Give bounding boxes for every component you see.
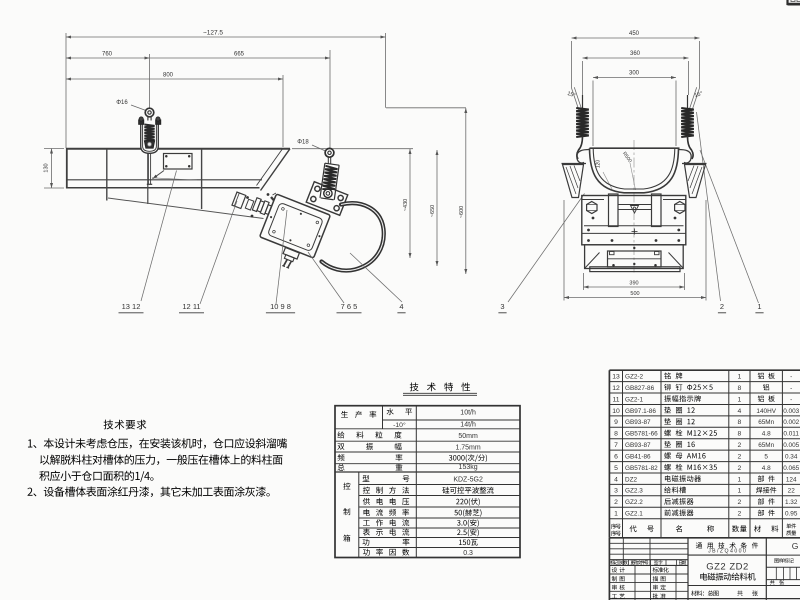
svg-text:1: 1 — [757, 302, 761, 311]
svg-text:-10°: -10° — [393, 421, 406, 429]
svg-text:2: 2 — [738, 465, 742, 472]
svg-text:8: 8 — [738, 431, 742, 438]
svg-text:13 12: 13 12 — [122, 302, 141, 311]
svg-text:4: 4 — [738, 408, 742, 415]
svg-text:2: 2 — [720, 302, 724, 311]
svg-text:~650: ~650 — [430, 205, 436, 217]
svg-text:14t/h: 14t/h — [460, 421, 476, 428]
svg-text:-: - — [790, 396, 792, 403]
svg-text:390: 390 — [629, 281, 638, 287]
svg-text:3: 3 — [500, 302, 504, 311]
svg-text:8: 8 — [738, 419, 742, 426]
svg-text:GZ2 ZD2: GZ2 ZD2 — [706, 561, 749, 572]
svg-text:GB5781-66: GB5781-66 — [625, 431, 658, 438]
svg-text:12 11: 12 11 — [182, 302, 200, 311]
svg-text:GB5781-82: GB5781-82 — [625, 465, 658, 472]
svg-text:8: 8 — [738, 385, 742, 392]
svg-text:KDZ-5G2: KDZ-5G2 — [453, 477, 483, 484]
svg-text:11: 11 — [612, 396, 619, 403]
svg-text:0.95: 0.95 — [785, 511, 798, 518]
svg-text:12: 12 — [612, 385, 620, 392]
svg-text:2: 2 — [738, 511, 742, 518]
svg-text:1: 1 — [738, 396, 742, 403]
svg-text:7 6 5: 7 6 5 — [341, 302, 358, 311]
svg-text:3: 3 — [614, 488, 618, 495]
svg-text:300: 300 — [629, 71, 640, 77]
svg-text:5: 5 — [764, 453, 768, 460]
svg-text:~430: ~430 — [403, 199, 409, 211]
svg-text:120: 120 — [596, 160, 602, 169]
svg-text:10: 10 — [612, 408, 620, 415]
svg-text:4.8: 4.8 — [762, 465, 771, 472]
svg-text:GZ2.3: GZ2.3 — [625, 488, 643, 495]
svg-text:2: 2 — [738, 499, 742, 506]
svg-text:0.065: 0.065 — [783, 465, 799, 472]
svg-text:GB97.1-86: GB97.1-86 — [625, 408, 656, 415]
svg-text:0.34: 0.34 — [785, 453, 798, 460]
svg-text:4.8: 4.8 — [762, 431, 771, 438]
svg-text:760: 760 — [102, 52, 113, 58]
svg-text:665: 665 — [234, 52, 245, 58]
svg-text:1.32: 1.32 — [785, 499, 798, 506]
svg-text:153kg: 153kg — [459, 464, 478, 471]
svg-text:65Mn: 65Mn — [758, 442, 774, 449]
svg-text:50mm: 50mm — [458, 433, 478, 440]
svg-text:360: 360 — [630, 51, 641, 57]
svg-text:10t/h: 10t/h — [460, 410, 476, 417]
svg-text:450: 450 — [629, 31, 640, 37]
svg-text:10 9 8: 10 9 8 — [270, 302, 291, 311]
svg-text:7: 7 — [614, 442, 618, 449]
svg-text:-: - — [790, 385, 792, 392]
svg-text:1: 1 — [738, 488, 742, 495]
svg-text:0.005: 0.005 — [783, 442, 799, 449]
svg-text:GZ2-2: GZ2-2 — [625, 374, 644, 381]
svg-text:13: 13 — [612, 374, 620, 381]
svg-text:130: 130 — [44, 163, 50, 172]
svg-text:-: - — [790, 374, 792, 381]
svg-text:9: 9 — [614, 419, 618, 426]
svg-text:J B / Z Q 4 0 0 0: J B / Z Q 4 0 0 0 — [708, 549, 746, 555]
svg-text:124: 124 — [786, 476, 797, 483]
svg-text:GB41-86: GB41-86 — [625, 453, 651, 460]
svg-text:2: 2 — [738, 453, 742, 460]
svg-text:Φ16: Φ16 — [116, 100, 128, 106]
svg-text:1.75mm: 1.75mm — [455, 444, 480, 451]
svg-text:500: 500 — [630, 291, 639, 297]
svg-text:GB93-87: GB93-87 — [625, 442, 651, 449]
svg-text:4: 4 — [399, 302, 403, 311]
svg-text:22: 22 — [788, 488, 796, 495]
svg-text:2: 2 — [738, 442, 742, 449]
svg-text:1: 1 — [738, 374, 742, 381]
svg-text:5: 5 — [614, 465, 618, 472]
svg-text:G: G — [792, 541, 799, 551]
svg-text:0.3: 0.3 — [463, 550, 473, 557]
svg-text:GB827-86: GB827-86 — [625, 385, 655, 392]
svg-text:0.003: 0.003 — [783, 408, 799, 415]
svg-text:0.011: 0.011 — [783, 431, 799, 438]
svg-text:1: 1 — [738, 476, 742, 483]
svg-text:6: 6 — [614, 453, 618, 460]
svg-text:~600: ~600 — [459, 206, 465, 218]
svg-text:65Mn: 65Mn — [758, 419, 774, 426]
svg-text:140HV: 140HV — [756, 408, 776, 415]
svg-text:800: 800 — [163, 73, 174, 79]
svg-text:2: 2 — [614, 499, 618, 506]
svg-text:GB93-87: GB93-87 — [625, 419, 651, 426]
svg-text:GZ2.1: GZ2.1 — [625, 511, 643, 518]
svg-text:~127.5: ~127.5 — [203, 30, 223, 37]
svg-text:0.002: 0.002 — [783, 419, 799, 426]
svg-text:GZ2.2: GZ2.2 — [625, 499, 643, 506]
svg-text:DZ2: DZ2 — [625, 476, 638, 483]
svg-text:GZ2-1: GZ2-1 — [625, 396, 644, 403]
svg-text:4: 4 — [614, 476, 618, 483]
svg-text:8: 8 — [614, 431, 618, 438]
svg-text:Φ18: Φ18 — [297, 140, 309, 146]
svg-text:1: 1 — [614, 511, 618, 518]
